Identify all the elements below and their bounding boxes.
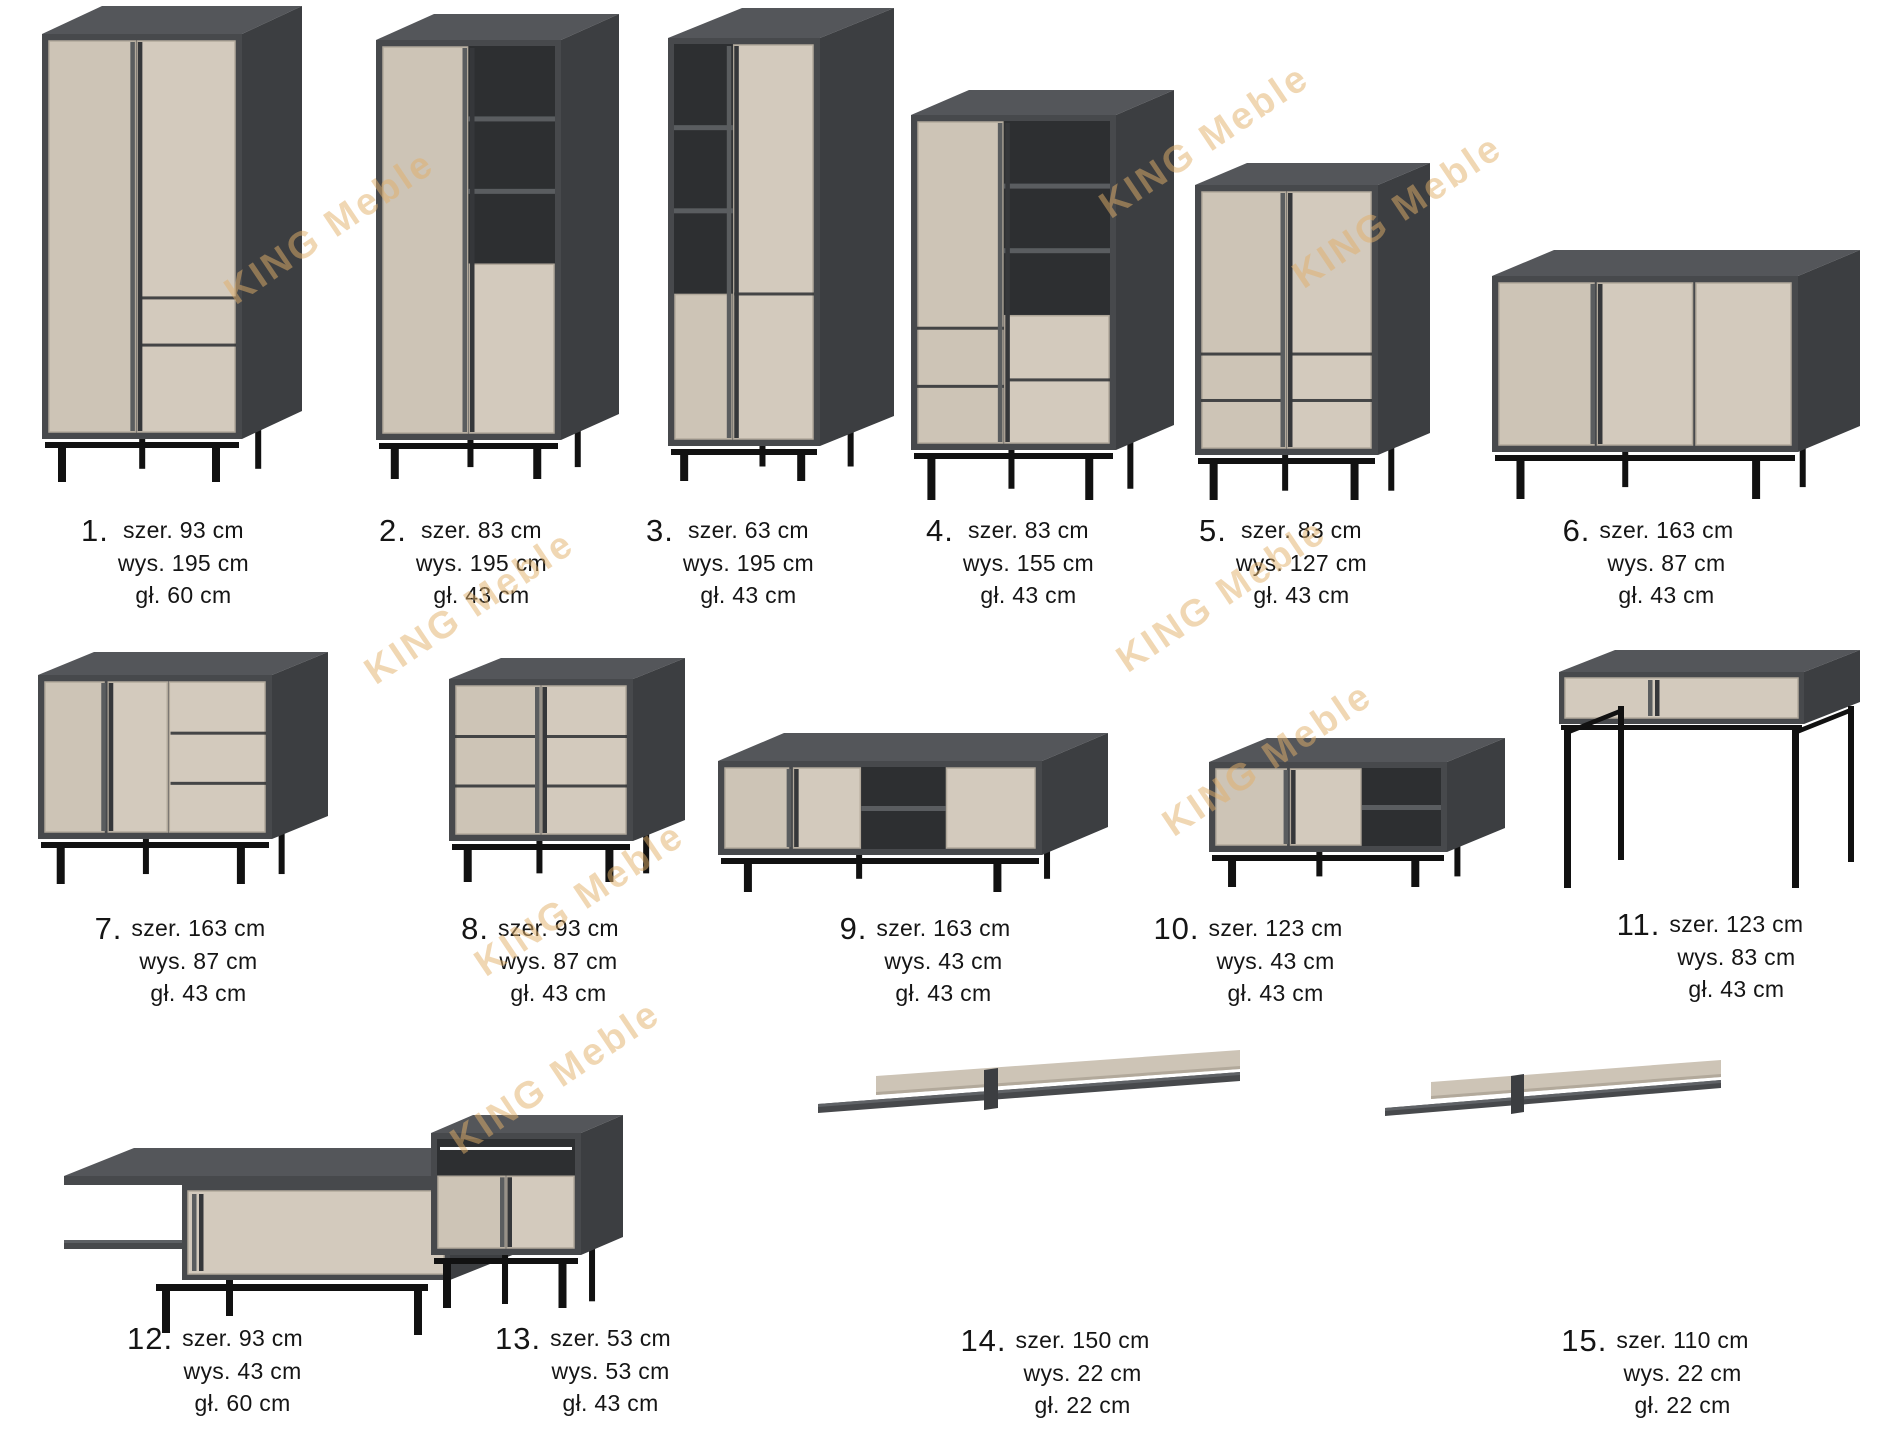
item-height: wys. 87 cm xyxy=(139,945,257,978)
item-height: wys. 83 cm xyxy=(1677,941,1795,974)
item-depth: gł. 22 cm xyxy=(1035,1389,1131,1422)
item-width: szer. 93 cm xyxy=(498,912,619,945)
item-number: 5. xyxy=(1199,515,1227,612)
item-width: szer. 83 cm xyxy=(968,514,1089,547)
item-height: wys. 127 cm xyxy=(1236,547,1367,580)
item-1-label: 1. szer. 93 cm wys. 195 cm gł. 60 cm xyxy=(60,514,270,612)
item-3-label: 3. szer. 63 cm wys. 195 cm gł. 43 cm xyxy=(630,514,830,612)
item-number: 15. xyxy=(1561,1325,1607,1422)
item-number: 8. xyxy=(461,913,489,1010)
item-depth: gł. 60 cm xyxy=(195,1387,291,1420)
item-depth: gł. 43 cm xyxy=(433,579,529,612)
item-height: wys. 43 cm xyxy=(184,1355,302,1388)
item-number: 11. xyxy=(1617,909,1661,1006)
item-10-label: 10. szer. 123 cm wys. 43 cm gł. 43 cm xyxy=(1128,912,1368,1010)
item-height: wys. 155 cm xyxy=(963,547,1094,580)
item-depth: gł. 43 cm xyxy=(1253,579,1349,612)
item-height: wys. 195 cm xyxy=(118,547,249,580)
item-width: szer. 53 cm xyxy=(550,1322,671,1355)
item-width: szer. 123 cm xyxy=(1669,908,1803,941)
item-depth: gł. 43 cm xyxy=(510,977,606,1010)
item-number: 10. xyxy=(1153,913,1199,1010)
item-width: szer. 63 cm xyxy=(688,514,809,547)
item-number: 12. xyxy=(127,1323,173,1420)
item-depth: gł. 43 cm xyxy=(700,579,796,612)
furniture-image-wardrobe xyxy=(38,6,306,496)
item-15-label: 15. szer. 110 cm wys. 22 cm gł. 22 cm xyxy=(1535,1324,1775,1422)
item-number: 6. xyxy=(1563,515,1591,612)
item-height: wys. 195 cm xyxy=(683,547,814,580)
item-height: wys. 87 cm xyxy=(499,945,617,978)
item-width: szer. 110 cm xyxy=(1616,1324,1748,1357)
item-width: szer. 123 cm xyxy=(1209,912,1343,945)
item-width: szer. 93 cm xyxy=(182,1322,303,1355)
item-width: szer. 83 cm xyxy=(421,514,542,547)
item-number: 1. xyxy=(81,515,109,612)
item-number: 9. xyxy=(840,913,868,1010)
item-height: wys. 195 cm xyxy=(416,547,547,580)
item-number: 13. xyxy=(495,1323,541,1420)
item-depth: gł. 43 cm xyxy=(1228,977,1324,1010)
item-number: 7. xyxy=(95,913,123,1010)
item-depth: gł. 22 cm xyxy=(1635,1389,1731,1422)
item-14-label: 14. szer. 150 cm wys. 22 cm gł. 22 cm xyxy=(935,1324,1175,1422)
catalog-canvas: 1. szer. 93 cm wys. 195 cm gł. 60 cm 2. … xyxy=(0,0,1890,1440)
item-width: szer. 83 cm xyxy=(1241,514,1362,547)
item-height: wys. 22 cm xyxy=(1024,1357,1142,1390)
furniture-image-narrow-bookcase xyxy=(658,8,903,486)
item-7-label: 7. szer. 163 cm wys. 87 cm gł. 43 cm xyxy=(75,912,285,1010)
item-9-label: 9. szer. 163 cm wys. 43 cm gł. 43 cm xyxy=(815,912,1035,1010)
furniture-image-tv-stand-small xyxy=(1203,738,1511,893)
item-number: 2. xyxy=(379,515,407,612)
item-depth: gł. 43 cm xyxy=(1618,579,1714,612)
item-width: szer. 163 cm xyxy=(876,912,1010,945)
item-height: wys. 43 cm xyxy=(1217,945,1335,978)
furniture-image-two-door-cabinet xyxy=(1186,163,1438,508)
furniture-image-sideboard xyxy=(1487,250,1865,508)
item-number: 4. xyxy=(926,515,954,612)
item-height: wys. 22 cm xyxy=(1624,1357,1742,1390)
item-width: szer. 150 cm xyxy=(1016,1324,1150,1357)
item-height: wys. 53 cm xyxy=(552,1355,670,1388)
item-height: wys. 87 cm xyxy=(1607,547,1725,580)
item-6-label: 6. szer. 163 cm wys. 87 cm gł. 43 cm xyxy=(1533,514,1763,612)
furniture-image-wall-shelf-short xyxy=(1383,1052,1725,1134)
item-depth: gł. 43 cm xyxy=(895,977,991,1010)
item-depth: gł. 43 cm xyxy=(980,579,1076,612)
furniture-image-wall-shelf-long xyxy=(816,1042,1244,1134)
item-number: 14. xyxy=(960,1325,1006,1422)
furniture-image-bookcase-cabinet xyxy=(368,14,626,486)
furniture-image-console-table xyxy=(1556,650,1864,895)
item-11-label: 11. szer. 123 cm wys. 83 cm gł. 43 cm xyxy=(1590,908,1830,1006)
item-width: szer. 163 cm xyxy=(1599,514,1733,547)
item-depth: gł. 43 cm xyxy=(563,1387,659,1420)
item-13-label: 13. szer. 53 cm wys. 53 cm gł. 43 cm xyxy=(468,1322,698,1420)
item-4-label: 4. szer. 83 cm wys. 155 cm gł. 43 cm xyxy=(910,514,1110,612)
item-depth: gł. 60 cm xyxy=(135,579,231,612)
furniture-image-display-cabinet xyxy=(900,90,1185,510)
furniture-image-chest-of-drawers xyxy=(438,658,696,890)
item-8-label: 8. szer. 93 cm wys. 87 cm gł. 43 cm xyxy=(430,912,650,1010)
item-depth: gł. 43 cm xyxy=(1688,973,1784,1006)
item-height: wys. 43 cm xyxy=(884,945,1002,978)
item-2-label: 2. szer. 83 cm wys. 195 cm gł. 43 cm xyxy=(363,514,563,612)
item-width: szer. 163 cm xyxy=(131,912,265,945)
item-number: 3. xyxy=(646,515,674,612)
item-width: szer. 93 cm xyxy=(123,514,244,547)
item-depth: gł. 43 cm xyxy=(150,977,246,1010)
furniture-image-bedside-table xyxy=(424,1115,629,1315)
furniture-image-tv-stand-large xyxy=(714,733,1112,898)
furniture-image-sideboard-drawers xyxy=(34,652,332,892)
item-5-label: 5. szer. 83 cm wys. 127 cm gł. 43 cm xyxy=(1183,514,1383,612)
item-12-label: 12. szer. 93 cm wys. 43 cm gł. 60 cm xyxy=(100,1322,330,1420)
